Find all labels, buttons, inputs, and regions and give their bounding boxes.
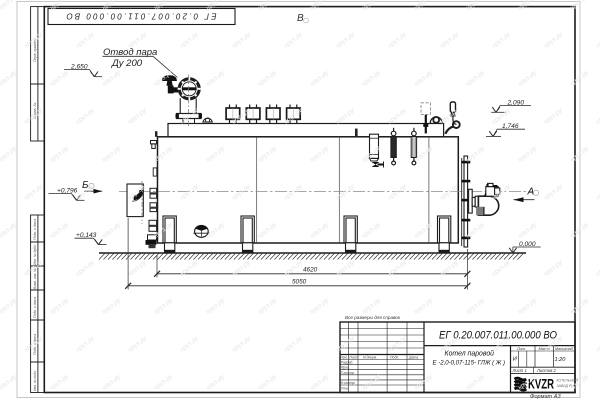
svg-text:круз.ру: круз.ру: [205, 297, 227, 316]
svg-text:Лит.: Лит.: [516, 347, 526, 351]
svg-text:круз.ру: круз.ру: [361, 69, 383, 88]
svg-text:Н.контр.: Н.контр.: [341, 381, 356, 385]
svg-text:круз.ру: круз.ру: [543, 183, 565, 202]
svg-text:круз.ру: круз.ру: [413, 69, 435, 88]
svg-text:Дата: Дата: [408, 355, 418, 359]
svg-text:круз.ру: круз.ру: [595, 259, 600, 278]
svg-text:круз.ру: круз.ру: [309, 69, 331, 88]
svg-text:круз.ру: круз.ру: [0, 297, 19, 316]
svg-text:круз.ру: круз.ру: [335, 259, 357, 278]
svg-text:Все размеры для справок: Все размеры для справок: [345, 315, 401, 320]
svg-text:круз.ру: круз.ру: [465, 145, 487, 164]
svg-text:круз.ру: круз.ру: [127, 335, 149, 354]
svg-text:круз.ру: круз.ру: [595, 183, 600, 202]
svg-text:круз.ру: круз.ру: [49, 297, 71, 316]
svg-text:круз.ру: круз.ру: [595, 107, 600, 126]
svg-text:круз.ру: круз.ру: [543, 259, 565, 278]
svg-text:круз.ру: круз.ру: [491, 259, 513, 278]
svg-text:круз.ру: круз.ру: [153, 297, 175, 316]
svg-text:круз.ру: круз.ру: [439, 31, 461, 50]
svg-text:Формат А3: Формат А3: [530, 394, 561, 400]
svg-text:круз.ру: круз.ру: [179, 335, 201, 354]
svg-text:Листов 2: Листов 2: [536, 368, 556, 373]
svg-text:круз.ру: круз.ру: [101, 221, 123, 240]
svg-text:круз.ру: круз.ру: [387, 259, 409, 278]
svg-text:круз.ру: круз.ру: [101, 69, 123, 88]
svg-text:круз.ру: круз.ру: [49, 373, 71, 392]
svg-text:4620: 4620: [303, 267, 318, 274]
svg-text:круз.ру: круз.ру: [205, 373, 227, 392]
svg-text:круз.ру: круз.ру: [283, 31, 305, 50]
svg-text:круз.ру: круз.ру: [101, 373, 123, 392]
svg-text:круз.ру: круз.ру: [439, 259, 461, 278]
svg-text:Разраб.: Разраб.: [341, 361, 354, 365]
svg-text:круз.ру: круз.ру: [75, 31, 97, 50]
svg-text:В: В: [297, 13, 304, 24]
svg-text:круз.ру: круз.ру: [101, 297, 123, 316]
svg-text:5050: 5050: [292, 279, 307, 286]
svg-text:круз.ру: круз.ру: [0, 0, 19, 12]
svg-text:круз.ру: круз.ру: [49, 221, 71, 240]
svg-text:круз.ру: круз.ру: [387, 335, 409, 354]
svg-text:Подп. и дата: Подп. и дата: [33, 219, 37, 240]
svg-text:1:20: 1:20: [555, 357, 567, 363]
svg-text:круз.ру: круз.ру: [283, 259, 305, 278]
svg-text:круз.ру: круз.ру: [335, 107, 357, 126]
svg-text:круз.ру: круз.ру: [465, 69, 487, 88]
svg-text:Подп. и дата: Подп. и дата: [33, 297, 37, 318]
svg-text:круз.ру: круз.ру: [517, 297, 539, 316]
svg-text:Лист: Лист: [348, 355, 358, 359]
svg-text:круз.ру: круз.ру: [543, 107, 565, 126]
svg-text:круз.ру: круз.ру: [127, 107, 149, 126]
svg-text:круз.ру: круз.ру: [49, 69, 71, 88]
svg-text:круз.ру: круз.ру: [0, 69, 19, 88]
svg-text:круз.ру: круз.ру: [0, 145, 19, 164]
svg-text:Лист 1: Лист 1: [512, 368, 527, 373]
svg-text:круз.ру: круз.ру: [517, 221, 539, 240]
svg-text:круз.ру: круз.ру: [517, 69, 539, 88]
svg-text:круз.ру: круз.ру: [413, 297, 435, 316]
svg-text:N докум.: N докум.: [363, 355, 377, 359]
svg-text:Котел паровой: Котел паровой: [445, 350, 495, 358]
svg-text:круз.ру: круз.ру: [595, 335, 600, 354]
svg-text:круз.ру: круз.ру: [49, 145, 71, 164]
svg-text:Е -2,0-0,07-115- ГЛЖ ( Ж ): Е -2,0-0,07-115- ГЛЖ ( Ж ): [433, 359, 506, 366]
svg-text:круз.ру: круз.ру: [361, 297, 383, 316]
svg-text:круз.ру: круз.ру: [257, 373, 279, 392]
svg-text:круз.ру: круз.ру: [257, 297, 279, 316]
svg-text:Утв.: Утв.: [341, 387, 349, 391]
svg-text:Т.контр.: Т.контр.: [341, 371, 355, 375]
svg-text:круз.ру: круз.ру: [231, 335, 253, 354]
svg-text:круз.ру: круз.ру: [335, 31, 357, 50]
svg-text:круз.ру: круз.ру: [179, 31, 201, 50]
svg-text:круз.ру: круз.ру: [387, 107, 409, 126]
svg-text:ЕГ 0.20.007.011.00.000 ВО: ЕГ 0.20.007.011.00.000 ВО: [67, 12, 217, 21]
svg-text:Ду 200: Ду 200: [111, 58, 143, 69]
svg-text:круз.ру: круз.ру: [465, 373, 487, 392]
svg-text:круз.ру: круз.ру: [153, 373, 175, 392]
svg-text:круз.ру: круз.ру: [517, 145, 539, 164]
svg-text:круз.ру: круз.ру: [75, 335, 97, 354]
svg-text:круз.ру: круз.ру: [309, 297, 331, 316]
svg-text:круз.ру: круз.ру: [23, 183, 45, 202]
svg-text:круз.ру: круз.ру: [309, 373, 331, 392]
svg-text:круз.ру: круз.ру: [231, 31, 253, 50]
svg-text:Пров.: Пров.: [341, 366, 350, 370]
svg-text:круз.ру: круз.ру: [205, 69, 227, 88]
svg-text:круз.ру: круз.ру: [335, 335, 357, 354]
svg-text:круз.ру: круз.ру: [179, 259, 201, 278]
svg-text:И: И: [513, 357, 517, 363]
svg-text:круз.ру: круз.ру: [465, 297, 487, 316]
svg-text:круз.ру: круз.ру: [0, 373, 19, 392]
svg-text:круз.ру: круз.ру: [257, 69, 279, 88]
svg-text:круз.ру: круз.ру: [75, 259, 97, 278]
svg-text:круз.ру: круз.ру: [543, 31, 565, 50]
svg-text:круз.ру: круз.ру: [465, 221, 487, 240]
svg-text:круз.ру: круз.ру: [491, 31, 513, 50]
svg-text:Масштаб: Масштаб: [555, 347, 574, 351]
svg-text:круз.ру: круз.ру: [0, 221, 19, 240]
svg-text:Изм.: Изм.: [340, 355, 347, 359]
svg-text:Подп.: Подп.: [390, 355, 399, 359]
svg-text:круз.ру: круз.ру: [231, 259, 253, 278]
svg-text:круз.ру: круз.ру: [127, 259, 149, 278]
svg-text:круз.ру: круз.ру: [387, 31, 409, 50]
svg-text:круз.ру: круз.ру: [101, 145, 123, 164]
svg-text:круз.ру: круз.ру: [75, 107, 97, 126]
svg-text:круз.ру: круз.ру: [595, 31, 600, 50]
svg-text:Инв. № подл.: Инв. № подл.: [33, 370, 37, 391]
svg-text:круз.ру: круз.ру: [361, 373, 383, 392]
svg-text:круз.ру: круз.ру: [283, 335, 305, 354]
